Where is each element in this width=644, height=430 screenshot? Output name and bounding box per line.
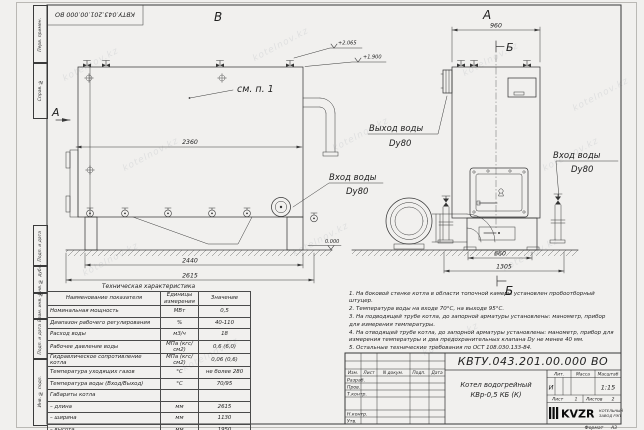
param-name: – длина: [48, 401, 161, 413]
note-5: 5. Остальные технические требования по О…: [349, 345, 617, 352]
table-row: Габариты котла: [48, 390, 251, 402]
lifting-lug-mark: [86, 166, 95, 175]
tech-table-title: Техническая характеристика: [47, 283, 250, 290]
param-unit: %: [161, 317, 199, 329]
logo-sub2: ЗАВОД РЭП: [599, 414, 621, 418]
water-outlet-label: Выход воды: [369, 124, 423, 134]
table-row: Расход водым3/ч18: [48, 329, 251, 341]
param-value: 2615: [199, 401, 251, 413]
margin-label: Перв. примен.: [38, 18, 43, 52]
dim-960: 960: [490, 23, 502, 30]
tech-col-unit: Единицы измерения: [161, 292, 199, 306]
margin-box-sprav-no: Справ. №: [33, 62, 48, 119]
param-value: 1130: [199, 413, 251, 425]
param-name: Рабочее давление воды: [48, 340, 161, 353]
param-unit: °С: [161, 367, 199, 379]
param-unit: м3/ч: [161, 329, 199, 341]
param-unit: °С: [161, 378, 199, 390]
blower-fan: [386, 198, 495, 249]
col-podp: Подп.: [412, 370, 425, 376]
param-value: [199, 390, 251, 402]
dim-2615: 2615: [182, 273, 198, 280]
furnace-door: [470, 168, 528, 217]
margin-box-perv-primen: Перв. примен.: [33, 5, 48, 64]
list-label: Лист: [551, 397, 564, 403]
param-name: Расход воды: [48, 329, 161, 341]
drain-valve-icon: [122, 208, 129, 217]
param-value: 18: [199, 329, 251, 341]
elevation-marks: +2.065 +1.900: [294, 41, 386, 67]
param-name: Номинальная мощность: [48, 306, 161, 318]
margin-box-inv-podl: Инв. № подл.: [33, 358, 48, 426]
dim-2360: 2360: [182, 139, 198, 146]
param-unit: МВт: [161, 306, 199, 318]
water-outlet-flange: [441, 70, 452, 93]
water-inlet-label: Вход воды: [329, 173, 377, 183]
ground-hatch: [66, 250, 332, 256]
margin-label: Взам. инв. №: [38, 291, 43, 322]
drawing-sheet: kotelnov.kz kotelnov.kz kotelnov.kz kote…: [0, 0, 644, 430]
valve-icon: [102, 61, 110, 68]
col-ndoc: N докум.: [383, 370, 403, 376]
param-value: 0,5: [199, 306, 251, 318]
elev-1900: +1.900: [363, 55, 382, 61]
row-prov: Пров.: [347, 385, 360, 391]
param-value: 40-110: [199, 317, 251, 329]
param-unit: мм: [161, 424, 199, 430]
lit-value: И: [549, 384, 554, 392]
margin-box-inv-dubl: Инв. № дубл.: [33, 265, 48, 294]
product-name-line1: Котел водогрейный: [460, 381, 532, 389]
see-item-note: см. п. 1: [237, 84, 274, 95]
logo-text: KVZR: [561, 408, 595, 421]
row-nkontr: Н.контр.: [347, 412, 368, 418]
param-value: 70/95: [199, 378, 251, 390]
margin-box-podp-data-1: Подп. и дата: [33, 225, 48, 267]
valve-icon: [457, 61, 465, 68]
tech-table-header: Наименование показателя Единицы измерени…: [48, 292, 251, 306]
param-value: 0,06 (0,6): [199, 353, 251, 366]
table-row: – высотамм1950: [48, 424, 251, 430]
valve-icon: [286, 61, 294, 68]
param-value: не более 280: [199, 367, 251, 379]
param-name: – ширина: [48, 413, 161, 425]
margin-box-podp-data-2: Подп. и дата: [33, 318, 48, 360]
param-unit: [161, 390, 199, 402]
elev-0: 0.000: [325, 239, 339, 245]
dim-660: 660: [494, 251, 506, 258]
view-label-b: В: [214, 10, 222, 24]
col-list: Лист: [362, 370, 375, 376]
water-inlet-right-label: Вход воды: [553, 151, 601, 161]
dim-2440: 2440: [182, 258, 198, 265]
table-row: Гидравлическое сопротивление котлаМПа (к…: [48, 353, 251, 366]
top-stamp: КВТУ.043.201.00.000 ВО: [47, 5, 143, 25]
format-value: А3: [610, 425, 617, 430]
row-utv: Утв.: [347, 419, 357, 425]
ground-hatch: [352, 250, 578, 256]
margin-label: Инв. № подл.: [38, 376, 43, 407]
ash-door: [479, 227, 515, 240]
view-arrow-a-label: А: [51, 106, 60, 119]
note-4: 4. На отводящей трубе котла, до запорной…: [349, 330, 617, 344]
water-inlet-right-dn: Dy80: [571, 165, 593, 175]
lifting-lug-mark: [85, 74, 94, 83]
elev-2065: +2.065: [338, 41, 357, 47]
elevation-mark-icon: [328, 246, 334, 250]
drain-valve-icon: [209, 208, 216, 217]
table-row: Температура уходящих газов°Сне более 280: [48, 367, 251, 379]
param-name: Диапазон рабочего регулирования: [48, 317, 161, 329]
table-row: Номинальная мощностьМВт0,5: [48, 306, 251, 318]
top-stamp-number: КВТУ.043.201.00.000 ВО: [55, 11, 135, 18]
drain-valve-icon: [165, 208, 172, 217]
valve-icon: [523, 61, 531, 68]
table-row: Рабочее давление водыМПа (кгс/см2)0,6 (6…: [48, 340, 251, 353]
param-name: Гидравлическое сопротивление котла: [48, 353, 161, 366]
list-value: 1: [575, 397, 578, 403]
format-label: Формат: [585, 425, 604, 430]
drain-valve-icon: [311, 213, 318, 222]
logo-sub1: КОТЕЛЬНЫЙ: [599, 408, 623, 413]
param-name: Габариты котла: [48, 390, 161, 402]
param-name: Температура уходящих газов: [48, 367, 161, 379]
water-outlet-dn: Dy80: [389, 139, 411, 149]
lit-label: Лит.: [553, 372, 564, 378]
titleblock-doc-number: КВТУ.043.201.00.000 ВО: [458, 355, 608, 368]
tech-table: Наименование показателя Единицы измерени…: [47, 291, 251, 430]
water-inlet-dn: Dy80: [346, 187, 368, 197]
view-label-a: А: [482, 8, 491, 22]
param-unit: мм: [161, 401, 199, 413]
listov-value: 2: [612, 397, 615, 403]
masshtab-label: Масштаб: [598, 372, 619, 378]
right-view: А 960 Б: [352, 8, 618, 298]
dim-1305: 1305: [496, 264, 512, 271]
param-value: 1950: [199, 424, 251, 430]
tech-col-value: Значение: [199, 292, 251, 306]
note-1: 1. На боковой стенке котла в области топ…: [349, 291, 617, 305]
param-unit: МПа (кгс/см2): [161, 340, 199, 353]
valve-icon: [216, 61, 224, 68]
param-unit: МПа (кгс/см2): [161, 353, 199, 366]
col-izm: Изм.: [348, 370, 358, 376]
left-view: В 2360 см. п. 1: [51, 10, 383, 283]
table-row: Температура воды (Вход/Выход)°С70/95: [48, 378, 251, 390]
row-tkontr: Т.контр.: [347, 392, 367, 398]
param-name: Температура воды (Вход/Выход): [48, 378, 161, 390]
table-row: – длинамм2615: [48, 401, 251, 413]
param-unit: мм: [161, 413, 199, 425]
technical-notes: 1. На боковой стенке котла в области топ…: [349, 291, 617, 353]
valve-icon: [83, 61, 91, 68]
title-block: КВТУ.043.201.00.000 ВО Изм. Лист N докум…: [345, 353, 623, 430]
tech-col-name: Наименование показателя: [48, 292, 161, 306]
margin-label: Подп. и дата: [38, 231, 43, 262]
kvzr-logo: KVZR КОТЕЛЬНЫЙ ЗАВОД РЭП: [549, 407, 623, 421]
boiler-base: [467, 218, 537, 250]
table-row: Диапазон рабочего регулирования%40-110: [48, 317, 251, 329]
listov-label: Листов: [585, 397, 603, 403]
margin-label: Справ. №: [38, 79, 43, 101]
col-data: Дата: [430, 370, 443, 376]
note-2: 2. Температура воды на входе 70°С, на вы…: [349, 306, 617, 313]
drain-valve-icon: [244, 208, 251, 217]
massa-label: Масса: [576, 372, 590, 378]
product-name-line2: КВр-0,5 КБ (К): [470, 391, 521, 399]
lifting-lug-mark: [218, 74, 227, 83]
section-label-top: Б: [506, 41, 514, 54]
param-name: – высота: [48, 424, 161, 430]
table-row: – ширинамм1130: [48, 413, 251, 425]
margin-label: Подп. и дата: [38, 324, 43, 355]
inlet-valve-right: [550, 194, 565, 243]
masshtab-value: 1:15: [601, 384, 616, 392]
note-3: 3. На подводящей трубе котла, до запорно…: [349, 314, 617, 328]
param-value: 0,6 (6,0): [199, 340, 251, 353]
row-razrab: Разраб.: [347, 378, 365, 384]
valve-icon: [470, 61, 478, 68]
control-box: [508, 78, 536, 97]
margin-box-vzam-inv: Взам. инв. №: [33, 292, 48, 320]
